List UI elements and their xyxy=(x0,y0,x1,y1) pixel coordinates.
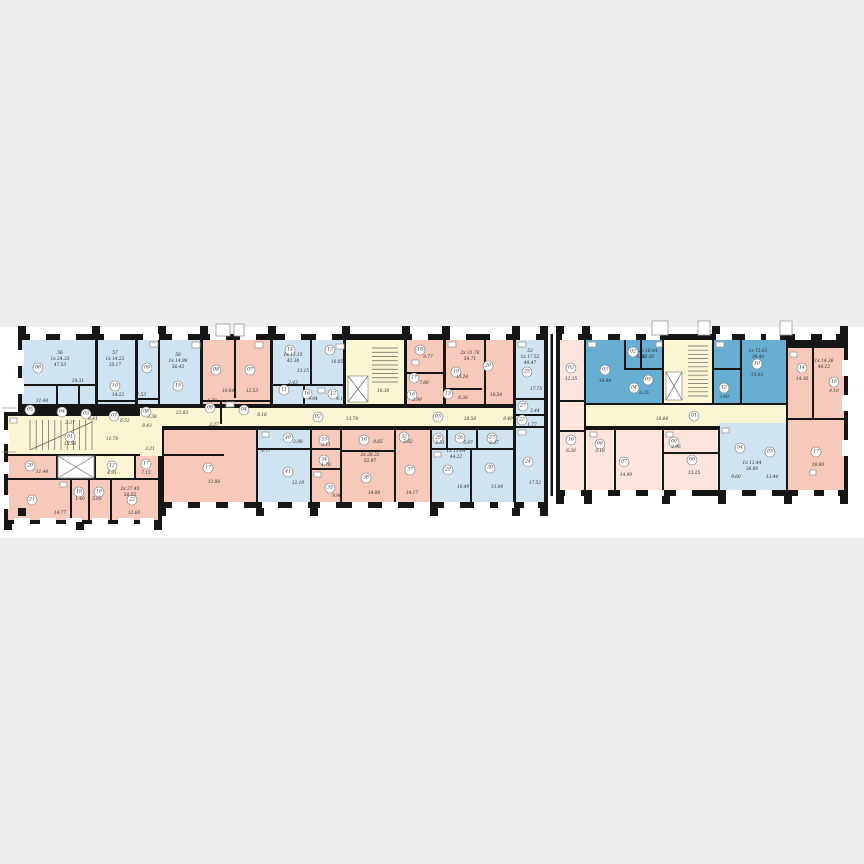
room-number: 18 xyxy=(417,347,423,353)
area-label: 10.38 xyxy=(377,389,390,394)
area-label: 12.19 xyxy=(292,481,305,486)
area-label: 4.10 xyxy=(828,389,839,394)
room-number-badge: 23 xyxy=(517,415,527,425)
room-number: 17 xyxy=(143,461,149,467)
pilaster xyxy=(582,326,590,334)
room-number: 17 xyxy=(411,375,417,381)
pilaster xyxy=(158,508,166,516)
plan-shape xyxy=(310,340,312,384)
area-label: 12.35 xyxy=(565,377,578,382)
plan-shape xyxy=(446,388,482,390)
window xyxy=(524,502,538,508)
room-number: 27 xyxy=(488,435,495,441)
area-label: 1к 13.15 xyxy=(284,353,303,358)
area-label: 1.40 xyxy=(75,497,85,502)
window xyxy=(4,462,9,474)
room-number-badge: 10 xyxy=(110,381,120,391)
room-number-badge: 40 xyxy=(283,433,293,443)
window xyxy=(520,334,536,340)
room-number: 03 xyxy=(435,414,441,420)
area-label: 3.11 xyxy=(321,443,331,448)
area-label: 3.38 xyxy=(147,415,157,420)
room-number: 02 xyxy=(630,349,636,355)
room-number-badge: 17 xyxy=(811,447,821,457)
room-number: 02 xyxy=(568,365,574,371)
area-label: 14.36 xyxy=(796,377,809,382)
room-number-badge: 15 xyxy=(443,389,453,399)
plan-shape xyxy=(312,448,340,450)
room-number-badge: 06 xyxy=(205,403,215,413)
room-number-badge: 12 xyxy=(719,383,729,393)
room-number: 20 xyxy=(484,363,491,369)
plan-shape xyxy=(714,368,740,370)
area-label: 3.51 xyxy=(435,441,445,446)
room-number: 17 xyxy=(205,465,211,471)
window xyxy=(292,502,308,508)
plan-shape xyxy=(624,368,662,370)
room-number: 14 xyxy=(287,347,293,353)
area-label: 8.49 xyxy=(503,417,513,422)
area-label: 4.91 xyxy=(106,471,117,476)
plan-shape xyxy=(312,468,340,470)
plan-shape xyxy=(470,450,472,502)
window xyxy=(30,334,46,340)
plan-shape xyxy=(614,430,616,490)
room-number-badge: 12 xyxy=(107,461,117,471)
room-number-badge: 03 xyxy=(433,412,443,422)
area-label: 8.18 xyxy=(257,413,267,418)
fixture xyxy=(150,342,158,347)
apt-56 xyxy=(22,340,95,404)
room-number-badge: 07 xyxy=(109,411,119,421)
room-number-badge: 15 xyxy=(173,381,183,391)
plan-shape xyxy=(158,340,160,404)
fixture xyxy=(314,472,321,477)
area-label: 9.60 xyxy=(731,475,741,480)
pilaster xyxy=(662,496,670,504)
room-number: 04 xyxy=(737,445,743,451)
area-label: 36.90 xyxy=(746,467,759,472)
window xyxy=(382,502,398,508)
area-label: 3.40 xyxy=(719,395,729,400)
fixture xyxy=(318,388,325,393)
pilaster xyxy=(442,326,450,334)
room-number-badge: 17 xyxy=(203,463,213,473)
fixture xyxy=(434,452,441,457)
balcony xyxy=(698,321,710,335)
room-number: 03 xyxy=(83,411,89,417)
area-label: 3.27 xyxy=(209,423,219,428)
room-number: 29 xyxy=(444,467,451,473)
room-number: 15 xyxy=(831,379,837,385)
pilaster xyxy=(256,508,264,516)
area-label: 44.22 xyxy=(449,455,463,460)
area-label: 42.38 xyxy=(286,359,300,364)
room-number-badge: 17 xyxy=(409,373,419,383)
pilaster xyxy=(512,326,520,334)
window xyxy=(316,334,332,340)
area-label: 1.78 xyxy=(321,463,331,468)
plan-shape xyxy=(740,340,742,403)
room-number: 05 xyxy=(27,407,33,413)
area-label: 6.20 xyxy=(566,449,576,454)
plan-shape xyxy=(88,480,90,520)
area-label: 1.77 xyxy=(527,423,537,428)
room-number: 30 xyxy=(487,465,493,471)
area-label: 5.97 xyxy=(463,441,473,446)
room-number: 07 xyxy=(111,413,117,419)
pilaster xyxy=(18,508,26,516)
area-label: 8.41 xyxy=(88,417,98,422)
room-number-badge: 07 xyxy=(619,457,629,467)
plan-shape xyxy=(624,340,626,370)
room-number: 35 xyxy=(327,485,333,491)
room-number-badge: 02 xyxy=(313,412,323,422)
fixture xyxy=(716,342,724,347)
area-label: 3.18 xyxy=(595,449,605,454)
window xyxy=(60,334,76,340)
window xyxy=(498,502,514,508)
area-label: 57 xyxy=(112,351,118,356)
area-label: 3.08 xyxy=(636,355,646,360)
area-label: 15.63 xyxy=(751,373,764,378)
corridor-right xyxy=(586,405,786,426)
plan-shape xyxy=(340,430,342,502)
room-number: 37 xyxy=(407,467,413,473)
window xyxy=(92,518,108,524)
room-number-badge: 20 xyxy=(25,461,35,471)
pilaster xyxy=(840,326,848,334)
area-label: 18.54 xyxy=(490,393,503,398)
room-number: 18 xyxy=(96,489,102,495)
area-label: 50.55 xyxy=(124,493,137,498)
room-number: 25 xyxy=(523,369,530,375)
window xyxy=(842,440,848,456)
window xyxy=(285,334,301,340)
window xyxy=(648,490,664,496)
room-number-badge: 18 xyxy=(94,487,104,497)
area-label: 1к 24.33 xyxy=(51,357,70,362)
fixture xyxy=(412,360,419,365)
window xyxy=(104,334,120,340)
room-number: 27 xyxy=(519,403,526,409)
room-number-badge: 21 xyxy=(27,495,37,505)
window xyxy=(412,334,428,340)
room-number: 33 xyxy=(321,437,327,443)
window xyxy=(562,334,578,340)
room-number: 01 xyxy=(67,434,73,440)
area-label: 1к 13.04 xyxy=(447,449,466,454)
room-number: 15 xyxy=(445,391,451,397)
window xyxy=(798,490,814,496)
room-number: 17 xyxy=(813,449,819,455)
room-number-badge: 03 xyxy=(600,365,610,375)
room-number-badge: 04 xyxy=(735,443,745,453)
room-number: 11 xyxy=(281,387,287,393)
plan-shape xyxy=(640,340,642,368)
plan-shape xyxy=(560,430,584,432)
room-number-badge: 04 xyxy=(239,405,249,415)
room-number: 23 xyxy=(518,417,525,423)
room-number: 21 xyxy=(28,497,35,503)
plan-shape xyxy=(164,454,224,456)
fixture xyxy=(262,432,269,437)
window xyxy=(565,490,581,496)
area-label: 4.11 xyxy=(335,397,346,402)
room-number: 07 xyxy=(621,459,627,465)
area-label: 1.78 xyxy=(207,399,217,404)
room-number-badge: 14 xyxy=(797,363,807,373)
area-label: 18.64 xyxy=(656,417,669,422)
fixture xyxy=(590,432,597,437)
plan-shape xyxy=(788,418,844,420)
area-label: 13.15 xyxy=(297,369,310,374)
fixture xyxy=(722,428,729,433)
plan-shape xyxy=(110,480,112,520)
room-number: 08 xyxy=(213,367,219,373)
fixture xyxy=(10,418,17,423)
area-label: 14.90 xyxy=(620,473,633,478)
expansion-joint-wall xyxy=(551,334,554,496)
fixture xyxy=(810,470,816,475)
area-label: 2.96 xyxy=(670,445,681,450)
area-label: 16.80 xyxy=(812,463,825,468)
area-label: 14.17 xyxy=(406,491,419,496)
area-label: 11.44 xyxy=(36,470,49,475)
window xyxy=(676,490,692,496)
pilaster xyxy=(718,496,726,504)
room-number-badge: 05 xyxy=(25,405,35,415)
room-number-badge: 09 xyxy=(142,363,152,373)
window xyxy=(842,360,848,376)
room-number-badge: 29 xyxy=(443,465,453,475)
room-number-badge: 41 xyxy=(283,467,293,477)
plan-shape xyxy=(432,448,513,450)
room-number-badge: 02 xyxy=(566,363,576,373)
window xyxy=(4,430,9,444)
window xyxy=(320,502,336,508)
area-label: 1к 14.36 xyxy=(815,359,834,364)
room-number: 08 xyxy=(689,457,695,463)
area-label: 12.53 xyxy=(246,389,259,394)
plan-shape xyxy=(22,384,95,386)
window xyxy=(592,334,608,340)
pilaster xyxy=(402,326,410,334)
room-number: 06 xyxy=(597,441,603,447)
room-number: 04 xyxy=(59,409,65,415)
room-number-badge: 19 xyxy=(74,487,84,497)
room-number-badge: 06 xyxy=(595,439,605,449)
window xyxy=(40,518,56,524)
area-label: 52.97 xyxy=(364,459,377,464)
window xyxy=(14,518,30,524)
room-number: 12 xyxy=(109,463,115,469)
window xyxy=(172,502,188,508)
fixture xyxy=(448,342,456,347)
fixture xyxy=(518,342,526,347)
area-label: 4.77 xyxy=(260,449,271,454)
window xyxy=(620,490,636,496)
area-label: 3.21 xyxy=(145,447,155,452)
pilaster xyxy=(310,508,318,516)
plan-shape xyxy=(98,400,135,402)
room-number: 12 xyxy=(721,385,727,391)
area-label: 8.38 xyxy=(458,396,468,401)
window xyxy=(766,334,780,340)
window xyxy=(352,502,368,508)
room-number: 19 xyxy=(453,369,459,375)
room-number: 19 xyxy=(76,489,82,495)
area-label: 53 xyxy=(527,349,533,354)
wing-corridor xyxy=(8,416,158,454)
pilaster xyxy=(430,508,438,516)
room-number: 05 xyxy=(645,377,651,383)
room-number-badge: 11 xyxy=(279,385,289,395)
fixture xyxy=(336,344,344,349)
window xyxy=(140,518,154,524)
area-label: 13.25 xyxy=(688,471,701,476)
room-number: 10 xyxy=(754,361,760,367)
window xyxy=(726,490,742,496)
window xyxy=(490,334,506,340)
pilaster xyxy=(18,326,26,334)
area-label: 9.96 xyxy=(332,494,342,499)
area-label: 6.52 xyxy=(120,419,130,424)
pilaster xyxy=(712,326,720,334)
area-label: 18.58 xyxy=(464,417,477,422)
window xyxy=(18,378,24,394)
window xyxy=(118,518,134,524)
area-label: 15.58 xyxy=(64,442,77,447)
plan-shape xyxy=(560,400,584,402)
plan-shape xyxy=(78,386,80,404)
room-number-badge: 16 xyxy=(566,435,576,445)
room-number-badge: 37 xyxy=(405,465,415,475)
area-label: 10.85 xyxy=(331,360,344,365)
area-label: 2к 28.32 xyxy=(360,453,380,458)
window xyxy=(842,395,848,411)
area-label: 54.71 xyxy=(464,357,476,362)
area-label: 2.82 xyxy=(402,440,413,445)
room-number: 10 xyxy=(112,383,118,389)
area-label: 10.64 xyxy=(222,389,235,394)
area-label: 47.53 xyxy=(53,363,67,368)
room-number-badge: 18 xyxy=(415,345,425,355)
area-label: 5.05 xyxy=(92,497,102,502)
pilaster xyxy=(540,326,548,334)
pilaster xyxy=(512,508,520,516)
room-number: 16 xyxy=(409,392,415,398)
window xyxy=(592,490,608,496)
room-number: 28 xyxy=(434,435,441,441)
pilaster xyxy=(158,326,166,334)
room-number-badge: 01 xyxy=(65,432,75,442)
room-number: 16 xyxy=(568,437,574,443)
area-label: 7.88 xyxy=(419,381,429,386)
window xyxy=(4,495,9,509)
plan-shape xyxy=(484,340,486,404)
room-number: 24 xyxy=(524,459,531,465)
room-number-badge: 35 xyxy=(325,483,335,493)
area-label: 13.44 xyxy=(766,475,779,480)
fixture xyxy=(666,432,673,437)
window xyxy=(795,334,811,340)
area-label: 2к 16.44 xyxy=(638,349,658,354)
balcony xyxy=(234,324,244,336)
room-number: 36 xyxy=(363,475,369,481)
apt-pale-left xyxy=(560,340,584,490)
room-number-badge: 07 xyxy=(245,365,255,375)
room-number-badge: 24 xyxy=(523,457,533,467)
area-label: 1к 17.52 xyxy=(521,355,540,360)
area-label: 13.04 xyxy=(491,485,504,490)
area-label: 2.98 xyxy=(292,440,303,445)
window xyxy=(262,502,278,508)
plan-shape xyxy=(70,480,72,520)
pilaster xyxy=(840,496,848,504)
room-number-badge: 36 xyxy=(361,473,371,483)
area-label: 2.43 xyxy=(287,381,298,386)
area-label: 2.99 xyxy=(411,398,422,403)
area-label: 2к 27.45 xyxy=(120,487,140,492)
window xyxy=(200,502,216,508)
fixture xyxy=(226,402,234,407)
room-number: 34 xyxy=(321,457,327,463)
room-number: 09 xyxy=(671,439,677,445)
room-number-badge: 08 xyxy=(687,455,697,465)
room-number-badge: 27 xyxy=(518,401,528,411)
area-label: 24.31 xyxy=(71,379,84,384)
pilaster xyxy=(342,326,350,334)
room-number: 15 xyxy=(175,383,181,389)
room-number: 10 xyxy=(361,437,367,443)
room-number-badge: 05 xyxy=(643,375,653,385)
area-label: 14.08 xyxy=(368,491,381,496)
area-label: 11.44 xyxy=(36,399,49,404)
room-number-badge: 17 xyxy=(141,459,151,469)
area-label: 3.37 xyxy=(65,421,75,426)
plan-shape xyxy=(220,402,222,424)
area-label: 8.43 xyxy=(142,424,152,429)
room-number: 02 xyxy=(315,414,321,420)
room-number-badge: 30 xyxy=(485,463,495,473)
window xyxy=(822,334,836,340)
fixture xyxy=(656,342,662,347)
pilaster xyxy=(556,326,564,334)
area-label: 13.98 xyxy=(208,480,221,485)
window xyxy=(143,334,159,340)
area-label: 11.53 xyxy=(134,393,147,398)
room-number: 06 xyxy=(207,405,213,411)
pilaster xyxy=(92,326,100,334)
room-number: 08 xyxy=(143,409,149,415)
pilaster xyxy=(584,496,592,504)
area-label: 1к 14.22 xyxy=(106,357,125,362)
room-number-badge: 06 xyxy=(33,363,43,373)
room-number-badge: 08 xyxy=(211,365,221,375)
area-label: 38.40 xyxy=(752,355,765,360)
room-number-badge: 13 xyxy=(325,345,335,355)
room-number: 12 xyxy=(330,391,336,397)
room-number: 20 xyxy=(26,463,33,469)
fixture xyxy=(790,352,797,357)
area-label: 16.44 xyxy=(599,379,612,384)
fixture xyxy=(60,482,67,487)
pilaster xyxy=(268,326,276,334)
room-number: 05 xyxy=(767,449,773,455)
window xyxy=(824,490,838,496)
room-number: 07 xyxy=(247,367,253,373)
